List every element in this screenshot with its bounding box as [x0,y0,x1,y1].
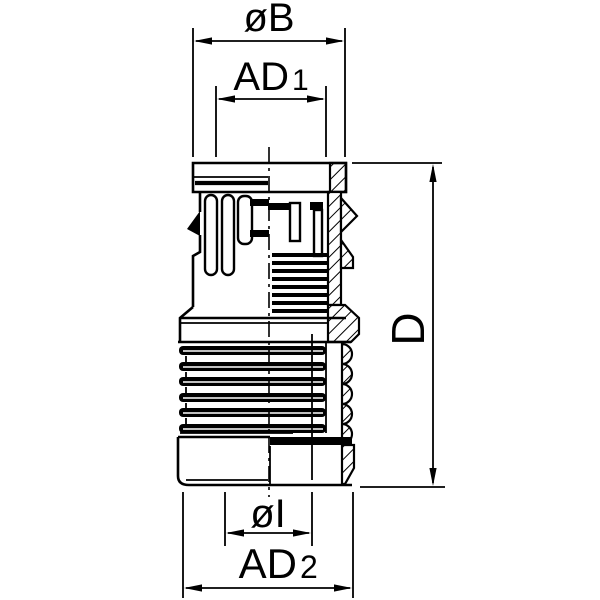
outer-wall-tooth [341,198,357,232]
technical-drawing: øB AD 1 D øI AD 2 [0,0,600,600]
label-inner-diameter-ad1: AD [233,55,289,99]
inner-corrugation-bands [272,253,327,313]
latch-finger-bar [314,210,322,256]
latch-clamp-arm-bottom [250,230,269,237]
label-inner-diameter-i: øI [250,492,286,536]
latch-clamp-bar [238,196,252,244]
label-outer-diameter-ad2-sub: 2 [300,549,318,585]
latch-plate [290,203,300,241]
sleeve-band-section [270,437,352,445]
ob-arrow-left [194,37,212,44]
fitting-body [178,147,359,497]
collar-flare-section [328,305,359,342]
d-arrow-bottom [429,468,436,486]
label-overall-length-d: D [382,312,434,345]
sleeve-wall-section [342,445,354,484]
rib-bands [179,346,326,433]
ad1-arrow-right [307,95,325,102]
left-body-edge [193,192,200,307]
slot-right [222,195,234,275]
dimension-inner-diameter-i: øI [225,492,312,546]
flange-corner-section [330,163,346,192]
left-barb [187,211,200,236]
label-inner-diameter-ad1-sub: 1 [292,64,309,97]
dimension-inner-diameter-ad1: AD 1 [216,55,326,157]
latch-clamp-arm-top [250,199,269,206]
slot-left [205,195,217,275]
drawing-page: øB AD 1 D øI AD 2 [0,0,600,600]
ad2-arrow-left [184,584,202,591]
label-outer-diameter-ad2: AD [239,540,297,587]
ad2-arrow-right [334,584,352,591]
latch-bar-top [268,203,290,210]
thread-profile-section [342,344,352,444]
oi-arrow-right [293,529,311,536]
ad1-arrow-left [217,95,235,102]
oi-arrow-left [226,529,244,536]
outer-wall-block [341,240,353,268]
outer-wall-section [328,192,341,305]
neck-chamfer [180,307,193,342]
dimension-overall-length-d: D [352,163,445,487]
ob-arrow-right [326,37,344,44]
label-outer-diameter-b: øB [243,0,294,40]
d-arrow-top [429,164,436,182]
